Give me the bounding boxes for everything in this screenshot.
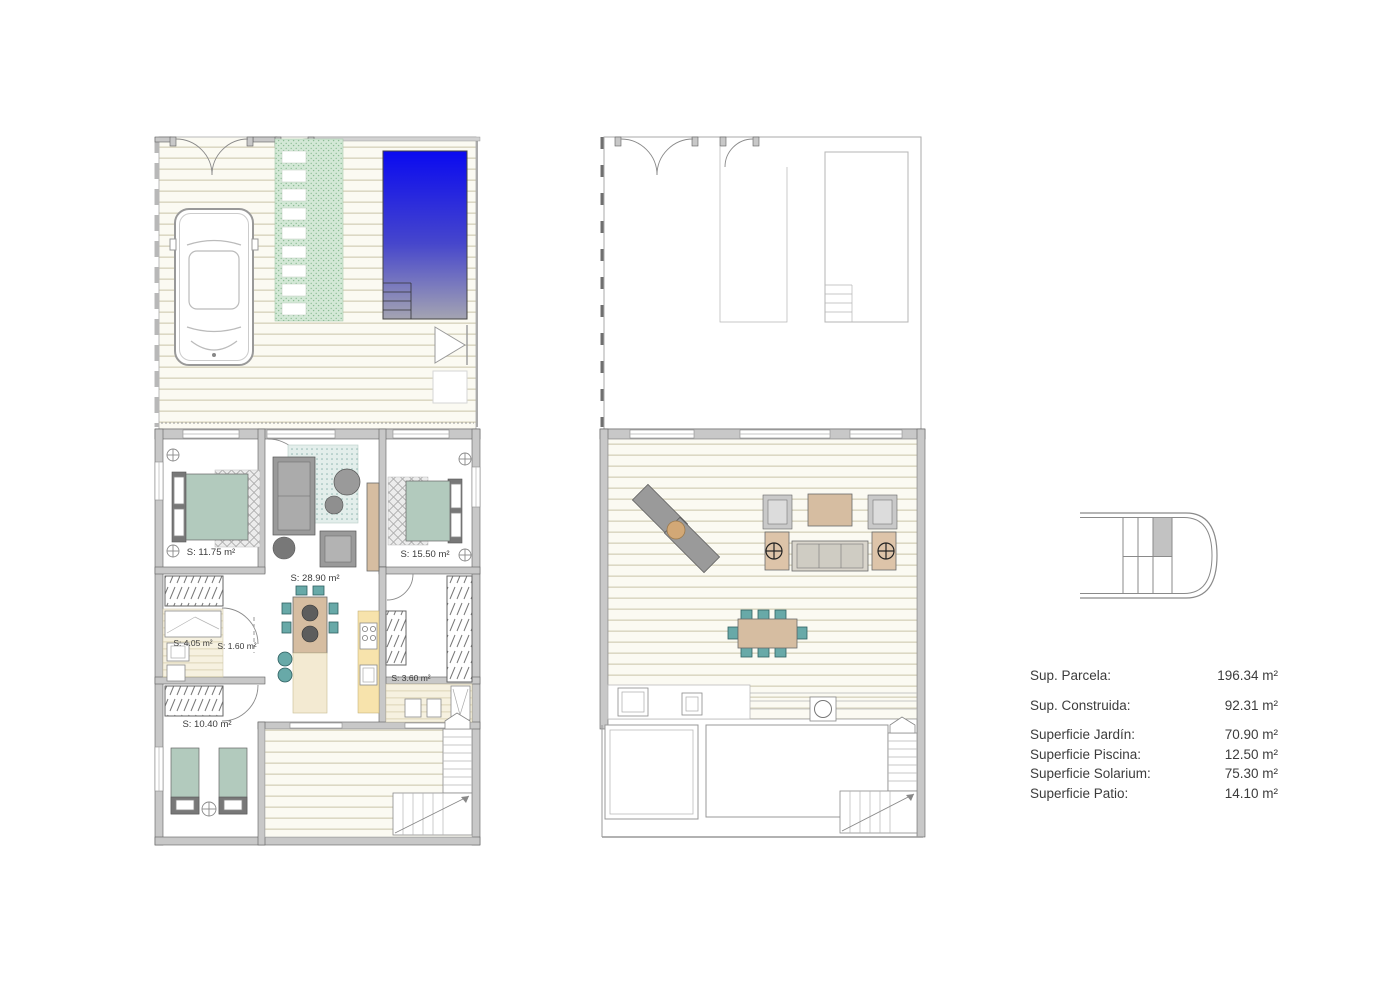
- single-bed: [171, 748, 199, 814]
- summary-row: Superficie Solarium: 75.30 m²: [1030, 764, 1278, 784]
- summary-row: Superficie Jardín: 70.90 m²: [1030, 725, 1278, 745]
- bedroom-3: S: 10.40 m²: [171, 719, 247, 816]
- summary-label: Superficie Piscina:: [1030, 745, 1141, 765]
- room-area-label: S: 15.50 m²: [400, 549, 449, 560]
- void-over-patio: [602, 717, 923, 837]
- bbq-icon: [810, 697, 836, 721]
- room-area-label: S: 10.40 m²: [182, 719, 231, 730]
- summary-value: 70.90 m²: [1225, 725, 1278, 745]
- summary-row: Superficie Patio: 14.10 m²: [1030, 784, 1278, 804]
- ground-floor-plan: S: 11.75 m² S: 28.90 m²: [155, 137, 480, 845]
- summary-row: Superficie Piscina: 12.50 m²: [1030, 745, 1278, 765]
- bedroom-2: S: 15.50 m²: [388, 453, 471, 561]
- summary-value: 92.31 m²: [1225, 696, 1278, 716]
- summary-label: Superficie Jardín:: [1030, 725, 1135, 745]
- highlighted-unit: [1153, 518, 1172, 557]
- bathroom-1: S: 4.05 m²: [163, 609, 223, 681]
- summary-value: 75.30 m²: [1225, 764, 1278, 784]
- car: [170, 209, 258, 365]
- patio: [265, 713, 472, 837]
- summary-label: Superficie Solarium:: [1030, 764, 1151, 784]
- garden-path: [275, 139, 343, 321]
- location-key-plan: [1080, 512, 1220, 602]
- first-floor-solarium-plan: [600, 137, 925, 845]
- room-area-label: S: 4.05 m²: [173, 638, 212, 648]
- room-area-label: S: 1.60 m²: [217, 641, 256, 651]
- kitchen-island: [278, 586, 338, 713]
- ceiling-light-icon: [202, 802, 216, 816]
- room-area-label: S: 3.60 m²: [391, 673, 430, 683]
- surface-summary: Sup. Parcela: 196.34 m² Sup. Construida:…: [1030, 666, 1278, 803]
- void-over-garden: [602, 137, 921, 429]
- summary-row: Sup. Parcela: 196.34 m²: [1030, 666, 1278, 686]
- summary-value: 14.10 m²: [1225, 784, 1278, 804]
- solarium: [608, 439, 917, 721]
- summary-label: Superficie Patio:: [1030, 784, 1128, 804]
- pool: [383, 151, 467, 319]
- bedroom-1: S: 11.75 m²: [167, 449, 260, 558]
- summary-row: Sup. Construida: 92.31 m²: [1030, 696, 1278, 716]
- living-room: S: 28.90 m²: [273, 445, 379, 713]
- kitchen-counter: [358, 611, 379, 713]
- room-area-label: S: 11.75 m²: [187, 547, 235, 558]
- summary-label: Sup. Construida:: [1030, 696, 1131, 716]
- floorplan-canvas: S: 11.75 m² S: 28.90 m²: [0, 0, 1400, 989]
- room-area-label: S: 28.90 m²: [290, 573, 339, 584]
- summary-label: Sup. Parcela:: [1030, 666, 1111, 686]
- summary-value: 12.50 m²: [1225, 745, 1278, 765]
- single-bed: [219, 748, 247, 814]
- summary-value: 196.34 m²: [1217, 666, 1278, 686]
